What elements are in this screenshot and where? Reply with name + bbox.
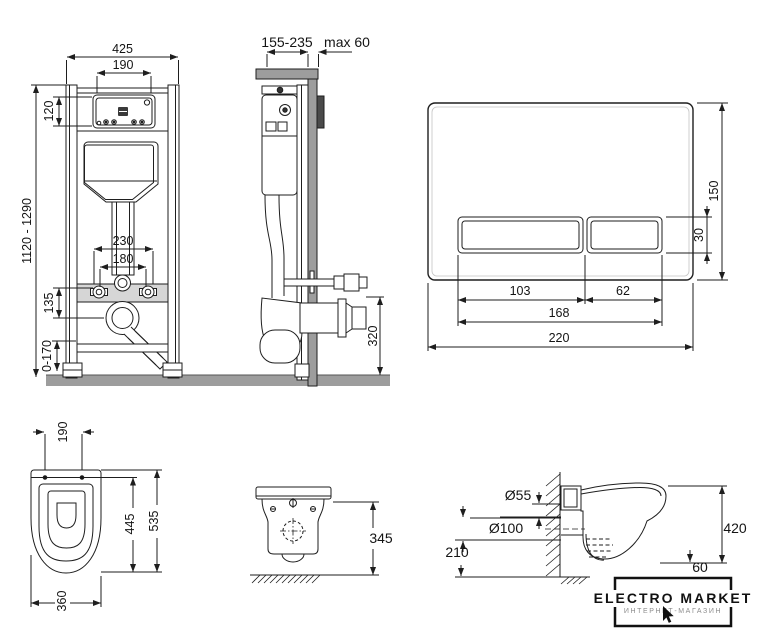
dim-bowl-width: 360 <box>55 591 69 612</box>
small-flush-button <box>587 217 662 253</box>
dim-flush-pipe: Ø55 <box>505 487 532 503</box>
technical-drawing-sheet: 425 190 120 1120 - 1290 230 1 <box>0 0 757 640</box>
view-toilet-front: 345 <box>250 487 393 583</box>
dim-plate-width: 220 <box>549 331 570 345</box>
dim-drain-height: 210 <box>445 544 469 560</box>
drain-pipe-side <box>300 299 366 337</box>
dim-small-button: 62 <box>616 284 630 298</box>
view-frame-side: 155-235 max 60 320 <box>256 34 384 386</box>
ground-hatching <box>561 577 587 584</box>
dim-drain-pipe: Ø100 <box>489 520 523 536</box>
view-flush-plate: 150 30 103 62 168 220 <box>428 103 728 351</box>
dim-button-height: 30 <box>692 228 706 242</box>
dim-inner-length: 445 <box>123 514 137 535</box>
floor <box>46 375 390 386</box>
flush-plate-side <box>317 96 324 128</box>
outlet-front <box>282 554 304 562</box>
view-toilet-side: Ø55 Ø100 210 420 60 <box>445 472 747 584</box>
view-frame-front: 425 190 120 1120 - 1290 230 1 <box>20 42 182 378</box>
big-flush-button <box>458 217 583 253</box>
frame-right-column <box>168 85 179 378</box>
dim-floor-adjust: 0-170 <box>40 340 54 372</box>
view-toilet-top: 190 445 535 360 <box>31 422 162 612</box>
dim-height-range: 1120 - 1290 <box>20 198 34 264</box>
dim-front-height: 345 <box>369 530 393 546</box>
logo: ELECTRO MARKET ИНТЕРНЕТ-МАГАЗИН <box>594 578 753 626</box>
inlet-pipe <box>284 271 367 293</box>
dim-rod-spacing: 180 <box>113 252 134 266</box>
installation-drawing: 425 190 120 1120 - 1290 230 1 <box>0 0 757 640</box>
dim-outlet-height: 320 <box>366 326 380 347</box>
logo-subtitle: ИНТЕРНЕТ-МАГАЗИН <box>624 608 722 615</box>
dim-bottom-gap: 60 <box>692 559 708 575</box>
bowl-profile-side <box>561 483 666 560</box>
flush-bend <box>265 195 272 298</box>
toilet-front-dimensions: 345 <box>333 502 393 575</box>
dim-box-height: 120 <box>42 101 56 122</box>
cistern-front <box>84 142 158 202</box>
dim-depth-range: 155-235 <box>261 34 313 50</box>
dim-bolt-spacing: 230 <box>113 234 134 248</box>
dim-buttons-width: 168 <box>549 306 570 320</box>
wall-hatching <box>546 474 560 576</box>
drain-outlet-front <box>106 302 167 370</box>
logo-title: ELECTRO MARKET <box>594 590 753 606</box>
dim-max-wall: max 60 <box>324 34 370 50</box>
bowl-top-front <box>256 487 331 499</box>
siphon <box>260 298 302 363</box>
dim-plate-height: 150 <box>707 181 721 202</box>
dim-length: 535 <box>147 511 161 532</box>
frame-left-column <box>66 85 77 378</box>
dim-hole-spacing: 190 <box>56 422 70 443</box>
cistern-side <box>262 95 297 195</box>
dim-big-button: 103 <box>510 284 531 298</box>
dim-drain-offset: 135 <box>42 293 56 314</box>
dim-frame-width: 425 <box>112 42 133 56</box>
bowl-outline-top <box>31 470 101 573</box>
dim-frame-inner-width: 190 <box>113 58 134 72</box>
access-box <box>93 95 155 128</box>
dim-total-height: 420 <box>723 520 747 536</box>
ceiling-bracket <box>256 69 318 79</box>
wall <box>308 79 317 386</box>
